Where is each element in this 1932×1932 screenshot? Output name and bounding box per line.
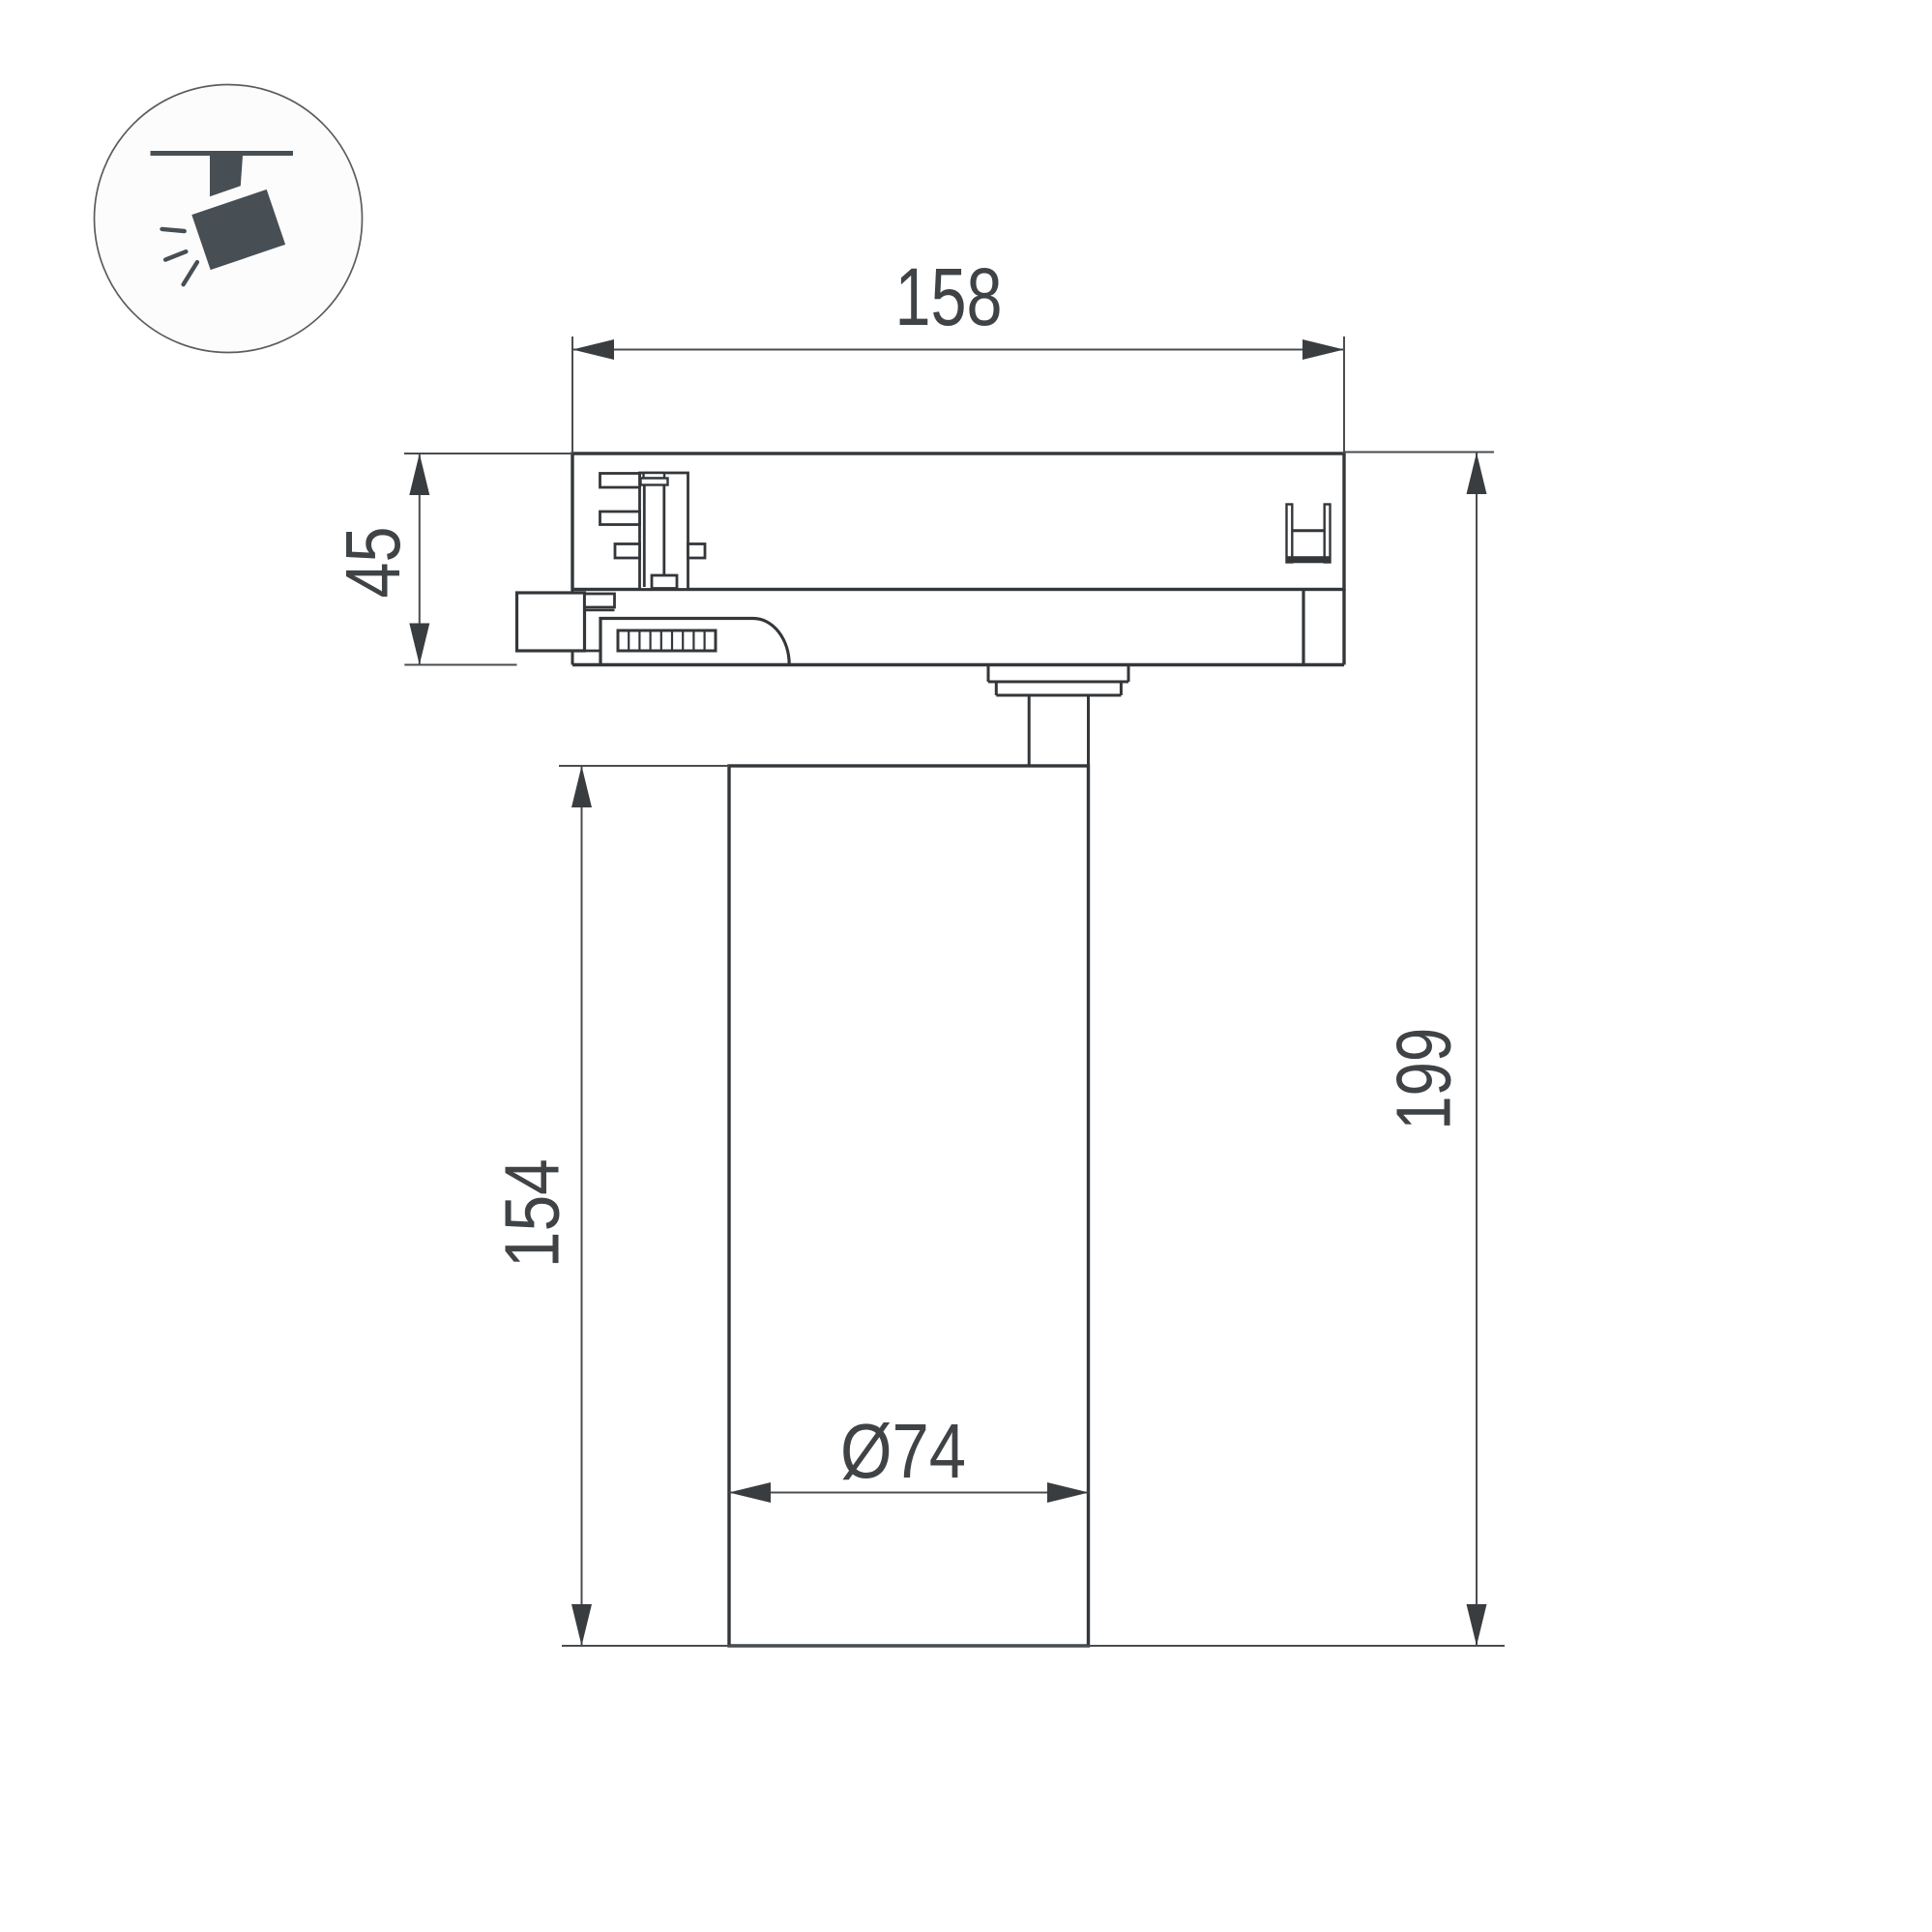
svg-text:154: 154 — [489, 1158, 575, 1268]
svg-text:199: 199 — [1380, 1028, 1466, 1130]
svg-text:Ø74: Ø74 — [840, 1408, 966, 1494]
svg-text:158: 158 — [895, 251, 1003, 342]
svg-text:45: 45 — [330, 527, 416, 599]
